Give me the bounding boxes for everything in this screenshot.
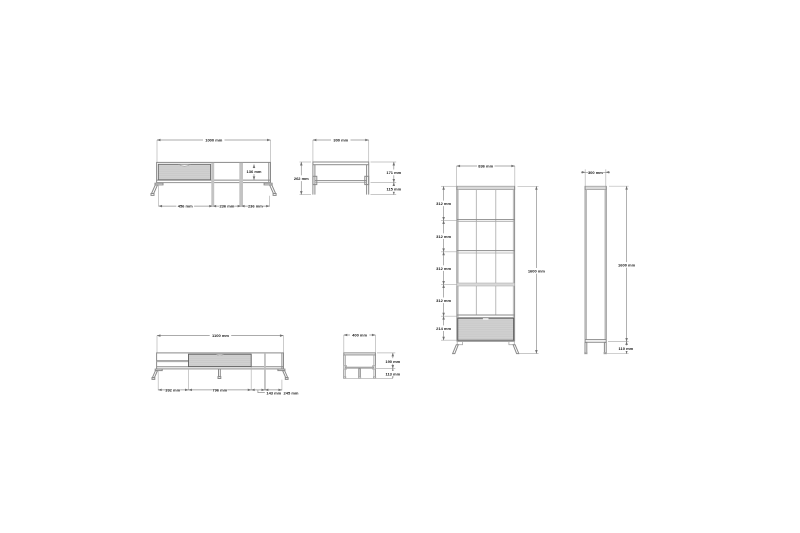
svg-text:245 mm: 245 mm bbox=[284, 391, 299, 396]
svg-text:236 mm: 236 mm bbox=[219, 204, 234, 209]
svg-text:312 mm: 312 mm bbox=[436, 266, 451, 271]
svg-text:300 mm: 300 mm bbox=[588, 170, 603, 175]
svg-text:262 mm: 262 mm bbox=[294, 176, 309, 181]
svg-text:171 mm: 171 mm bbox=[386, 170, 401, 175]
svg-text:136 mm: 136 mm bbox=[247, 169, 262, 174]
svg-text:796 mm: 796 mm bbox=[212, 387, 227, 392]
svg-text:190 mm: 190 mm bbox=[385, 359, 400, 364]
svg-text:836 mm: 836 mm bbox=[478, 164, 493, 169]
svg-text:392 mm: 392 mm bbox=[165, 387, 180, 392]
svg-text:312 mm: 312 mm bbox=[436, 234, 451, 239]
svg-text:312 mm: 312 mm bbox=[436, 298, 451, 303]
svg-text:400 mm: 400 mm bbox=[352, 333, 367, 338]
svg-text:110 mm: 110 mm bbox=[619, 346, 634, 351]
svg-text:1600 mm: 1600 mm bbox=[618, 263, 636, 268]
svg-text:113 mm: 113 mm bbox=[385, 371, 400, 376]
svg-text:143 mm: 143 mm bbox=[266, 391, 281, 396]
svg-text:312 mm: 312 mm bbox=[436, 201, 451, 206]
svg-text:214 mm: 214 mm bbox=[436, 326, 451, 331]
svg-text:236 mm: 236 mm bbox=[248, 204, 263, 209]
svg-text:300 mm: 300 mm bbox=[333, 138, 348, 143]
svg-text:115 mm: 115 mm bbox=[386, 187, 401, 192]
svg-text:456 mm: 456 mm bbox=[178, 204, 193, 209]
svg-text:1100 mm: 1100 mm bbox=[212, 333, 229, 338]
svg-text:1600 mm: 1600 mm bbox=[528, 269, 546, 274]
svg-text:1000 mm: 1000 mm bbox=[205, 138, 223, 143]
